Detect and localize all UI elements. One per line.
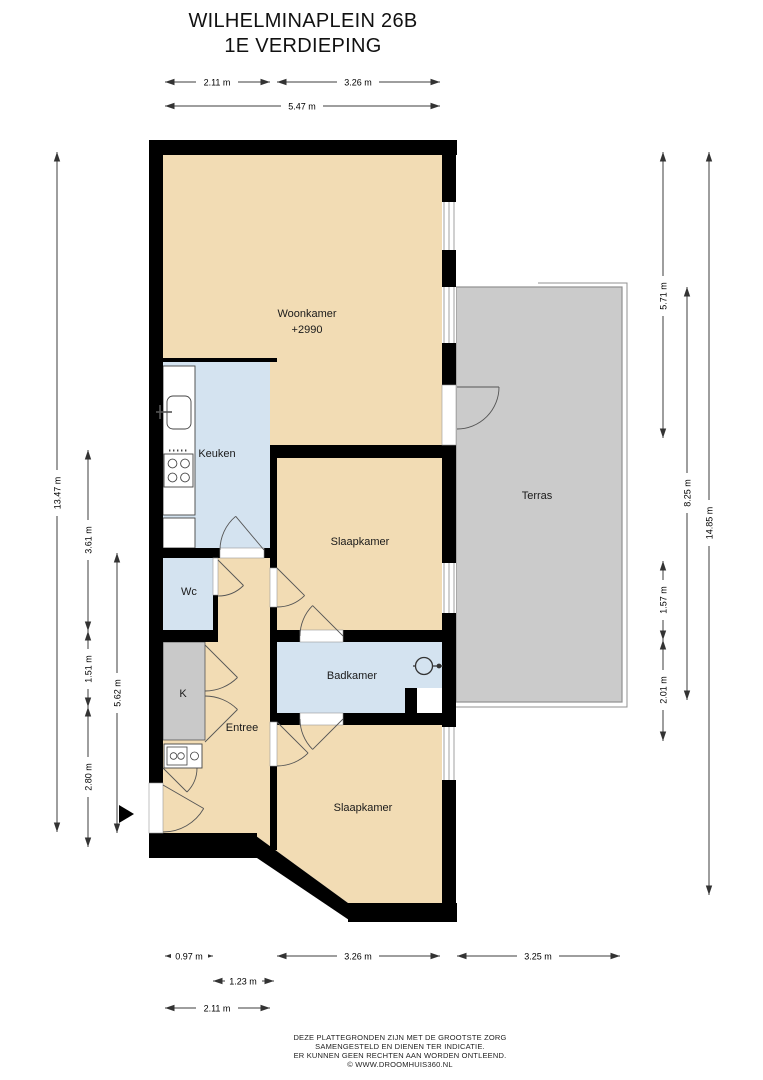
- stove-icon: [164, 450, 193, 488]
- wall-badkamer-top-b: [343, 630, 442, 642]
- wall-left: [149, 140, 163, 783]
- dim-right-5-label: 2.01 m: [659, 676, 669, 704]
- dim-left-3-label: 1.51 m: [84, 655, 94, 683]
- label-slaapkamer1: Slaapkamer: [331, 536, 390, 548]
- duct-shaft: [417, 688, 442, 713]
- window: [442, 563, 456, 613]
- terras-door-opening: [442, 385, 456, 445]
- dim-left-1-label: 13.47 m: [53, 477, 63, 510]
- dim-bottom-4-label: 1.23 m: [229, 977, 257, 987]
- wall-bottom-right: [348, 903, 457, 922]
- wall-slaapkamer1-top: [270, 445, 442, 458]
- wall-right-2: [442, 250, 456, 287]
- badkamer-bottom-door-opening: [300, 713, 343, 725]
- dim-top-2-label: 3.26 m: [344, 78, 372, 88]
- label-badkamer: Badkamer: [327, 670, 377, 682]
- wall-wc-right: [213, 595, 218, 632]
- label-wc: Wc: [181, 586, 197, 598]
- entrance-arrow-icon: [119, 805, 134, 823]
- dim-left-2-label: 3.61 m: [84, 526, 94, 554]
- dim-right-3-label: 14.85 m: [705, 507, 715, 540]
- wall-right-6: [442, 780, 456, 903]
- page-title: WILHELMINAPLEIN 26B 1E VERDIEPING: [0, 9, 606, 59]
- wall-keuken-top-line: [163, 358, 277, 362]
- wall-corridor-b: [270, 607, 277, 720]
- dim-bottom-1-label: 0.97 m: [175, 952, 203, 962]
- wall-right-1: [442, 140, 456, 202]
- wall-right-4: [442, 445, 456, 563]
- badkamer-top-door-opening: [300, 630, 343, 642]
- wall-keuken-bottom-a: [163, 548, 220, 558]
- disclaimer-line-1: DEZE PLATTEGRONDEN ZIJN MET DE GROOTSTE …: [37, 1033, 763, 1042]
- disclaimer-line-3: ER KUNNEN GEEN RECHTEN AAN WORDEN ONTLEE…: [37, 1051, 763, 1060]
- wall-right-3: [442, 343, 456, 385]
- disclaimer: DEZE PLATTEGRONDEN ZIJN MET DE GROOTSTE …: [37, 1033, 763, 1069]
- wall-badkamer-bottom-b: [343, 713, 442, 725]
- dim-left-5-label: 5.62 m: [113, 679, 123, 707]
- wall-corridor-a: [270, 458, 277, 568]
- wc-door-opening: [213, 558, 218, 595]
- wall-bottom-left: [149, 833, 257, 858]
- floor-plan-svg: Woonkamer +2990 Keuken Wc K Entree Badka…: [0, 0, 763, 1080]
- kitchen-counter: [163, 366, 195, 515]
- wall-corridor-c: [270, 766, 277, 850]
- kitchen-appliance: [163, 518, 195, 548]
- dim-left-4-label: 2.80 m: [84, 763, 94, 791]
- dim-bottom-5-label: 2.11 m: [204, 1004, 231, 1014]
- label-entree: Entree: [226, 722, 258, 734]
- slaapkamer1-door-opening: [270, 568, 277, 607]
- disclaimer-line-4: © WWW.DROOMHUIS360.NL: [37, 1060, 763, 1069]
- dim-bottom-3-label: 3.25 m: [524, 952, 552, 962]
- label-slaapkamer2: Slaapkamer: [334, 802, 393, 814]
- window: [442, 287, 456, 343]
- wall-badkamer-top-a: [270, 630, 300, 642]
- window: [442, 202, 456, 250]
- entrance-door-opening: [149, 783, 163, 833]
- label-terras: Terras: [522, 490, 553, 502]
- label-kast: K: [179, 688, 187, 700]
- slaapkamer2-door-opening: [270, 722, 277, 766]
- wall-wc-kast: [149, 630, 218, 642]
- dim-bottom-2-label: 3.26 m: [344, 952, 372, 962]
- floorplan-page: WILHELMINAPLEIN 26B 1E VERDIEPING: [0, 0, 763, 1080]
- label-woonkamer-elevation: +2990: [292, 324, 323, 336]
- keuken-door-opening: [220, 548, 264, 558]
- title-floor: 1E VERDIEPING: [0, 34, 606, 59]
- room-fills: [163, 155, 627, 903]
- label-woonkamer: Woonkamer: [277, 308, 336, 320]
- wall-top: [149, 140, 457, 155]
- dim-right-1-label: 5.71 m: [659, 282, 669, 310]
- dim-right-4-label: 1.57 m: [659, 586, 669, 614]
- wall-right-5: [442, 613, 456, 727]
- washer-icon: [164, 744, 202, 768]
- label-keuken: Keuken: [198, 448, 235, 460]
- window: [442, 727, 456, 780]
- disclaimer-line-2: SAMENGESTELD EN DIENEN TER INDICATIE.: [37, 1042, 763, 1051]
- dim-right-2-label: 8.25 m: [683, 479, 693, 507]
- dim-top-3-label: 5.47 m: [288, 102, 316, 112]
- dim-top-1-label: 2.11 m: [204, 78, 231, 88]
- title-address: WILHELMINAPLEIN 26B: [0, 9, 606, 34]
- wall-badkamer-stub: [405, 688, 417, 713]
